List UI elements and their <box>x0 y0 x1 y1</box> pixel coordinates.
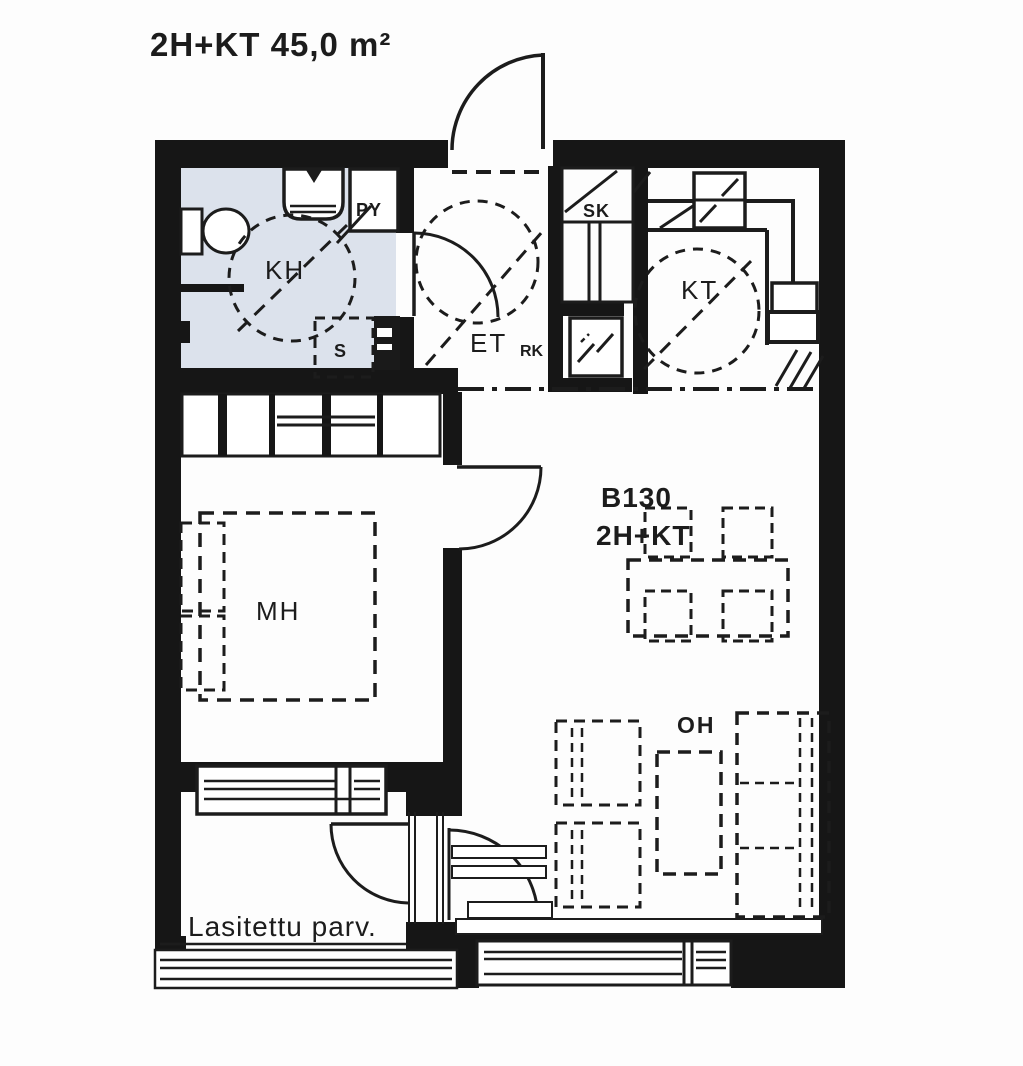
wall-left <box>155 140 181 988</box>
wall-right <box>819 140 845 988</box>
glazing-bar <box>452 846 546 858</box>
turning-circle-kitchen <box>635 249 759 373</box>
dining-table-outline <box>628 560 788 636</box>
nightstand-outline <box>181 523 224 611</box>
glazing-bar <box>452 866 546 878</box>
grab-bar-icon <box>180 284 244 292</box>
cabinet-slit <box>377 328 392 337</box>
floor-plan-page: 2H+KT 45,0 m² KH PY S ET RK SK KT B130 2… <box>0 0 1023 1066</box>
bedroom-window <box>197 766 386 814</box>
balcony-doors <box>331 812 552 924</box>
chair-outline <box>645 591 691 641</box>
bedroom-door <box>457 467 541 549</box>
wardrobe-divider <box>218 394 227 456</box>
balcony <box>155 944 457 988</box>
sofa-outline <box>737 713 829 917</box>
label-glazed-balcony: Lasitettu parv. <box>188 911 377 942</box>
floor-plan-drawing: 2H+KT 45,0 m² KH PY S ET RK SK KT B130 2… <box>0 0 1023 1066</box>
bathroom-cabinet-icon <box>374 316 400 370</box>
label-pantry: RK <box>520 343 544 360</box>
wall-below-bathroom <box>155 368 458 394</box>
wall-mount-icon <box>173 321 190 343</box>
chair-outline <box>723 508 772 557</box>
window-sill-band <box>456 919 822 934</box>
bathroom-door-swing <box>414 233 498 317</box>
wardrobe-divider <box>377 394 383 456</box>
chair-outline <box>723 591 772 641</box>
wall-top-left <box>155 140 448 168</box>
turning-circle-slash <box>644 255 757 369</box>
wall-bottom-right-of-window <box>731 935 845 988</box>
pantry-box <box>570 318 622 376</box>
plan-title: 2H+KT 45,0 m² <box>150 26 391 63</box>
pantry-rk <box>570 318 622 376</box>
wall-closet-right <box>633 166 648 394</box>
label-unit-id: B130 <box>601 482 672 513</box>
closet-sk <box>562 168 633 302</box>
label-bedroom: MH <box>256 596 300 626</box>
coffee-table-outline <box>657 752 721 874</box>
wall-closet-left <box>548 166 562 302</box>
label-washing-machine: PY <box>356 200 382 220</box>
wardrobe-divider <box>269 394 275 456</box>
corner-cabinet-diagonal <box>660 206 693 228</box>
living-room-furniture <box>556 713 829 917</box>
entrance-door <box>452 53 546 172</box>
toilet-tank-icon <box>181 209 202 254</box>
label-kitchen: KT <box>681 275 718 305</box>
label-closet: SK <box>583 201 610 221</box>
armchair-outline <box>556 823 640 907</box>
label-shower: S <box>334 341 347 361</box>
toilet-icon <box>203 209 249 253</box>
fridge-icon <box>768 312 818 342</box>
glazing-bar <box>468 902 552 918</box>
entrance-door-swing <box>452 55 543 150</box>
label-entry-hall: ET <box>470 328 507 358</box>
wardrobe-row <box>182 394 440 456</box>
cabinet-slit <box>377 344 392 350</box>
label-unit-type: 2H+KT <box>596 520 690 551</box>
wall-top-right <box>553 140 845 168</box>
wall-bedroom-lower <box>443 548 462 792</box>
bedroom-door-swing <box>459 467 541 549</box>
wall-bedroom-upper <box>443 392 462 465</box>
nightstand-outline <box>181 616 224 690</box>
label-living-room: OH <box>677 712 716 738</box>
fridge-icon <box>772 283 817 312</box>
balcony-door-swing <box>331 824 408 903</box>
armchair-outline <box>556 721 640 805</box>
label-bathroom: KH <box>265 255 305 285</box>
kitchen <box>633 172 823 390</box>
